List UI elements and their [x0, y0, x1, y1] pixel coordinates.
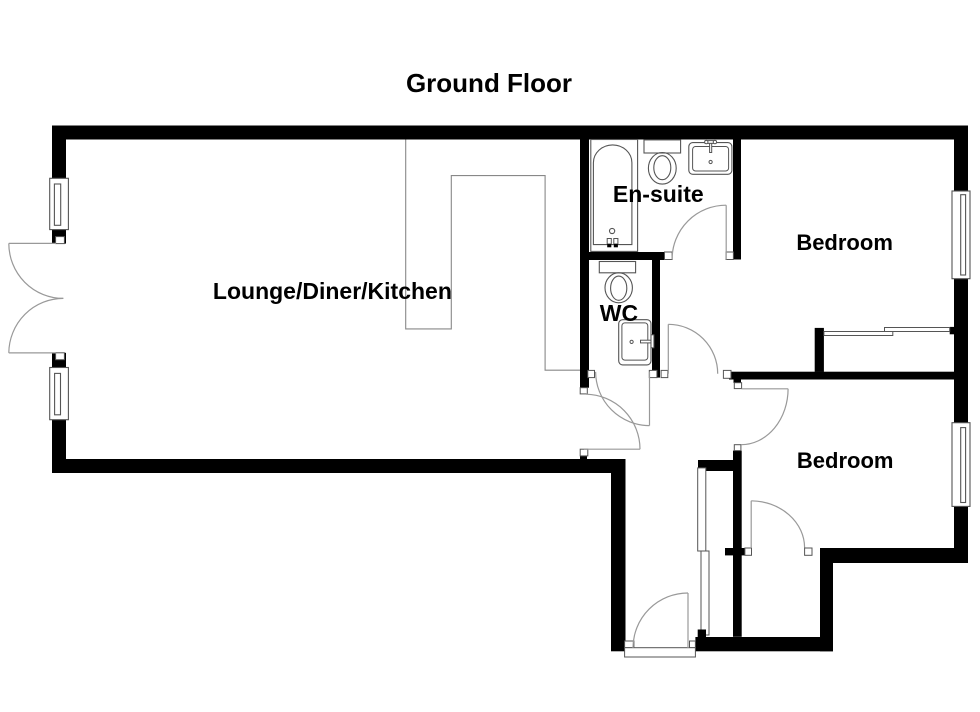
- svg-text:En-suite: En-suite: [613, 181, 704, 207]
- svg-text:Bedroom: Bedroom: [797, 448, 894, 473]
- svg-text:Ground Floor: Ground Floor: [406, 68, 572, 98]
- svg-text:WC: WC: [600, 300, 638, 326]
- svg-text:Lounge/Diner/Kitchen: Lounge/Diner/Kitchen: [213, 278, 452, 304]
- svg-text:Bedroom: Bedroom: [796, 230, 893, 255]
